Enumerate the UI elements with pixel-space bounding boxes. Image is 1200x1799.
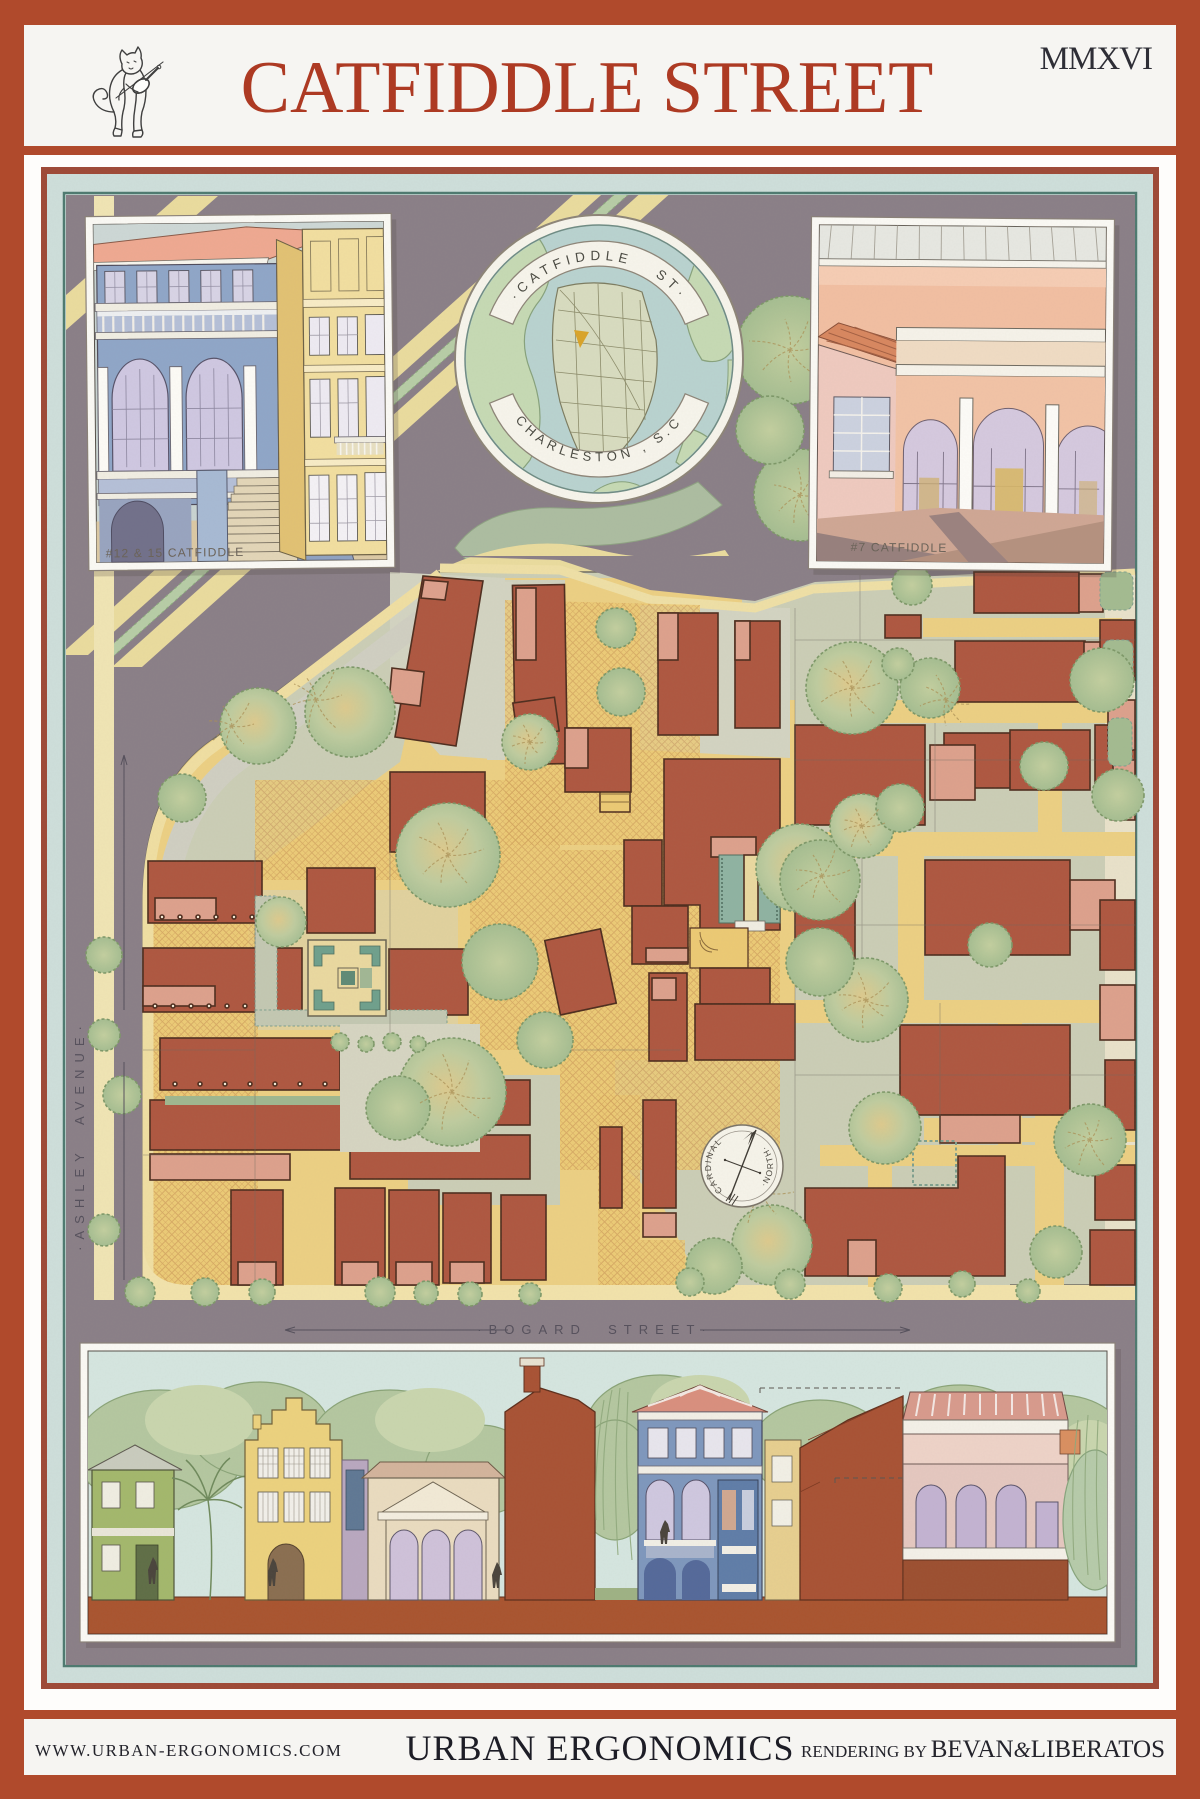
svg-text:MMXVI: MMXVI	[1040, 41, 1152, 77]
svg-text:CATFIDDLE STREET: CATFIDDLE STREET	[241, 47, 934, 129]
svg-text:WWW.URBAN-ERGONOMICS.COM: WWW.URBAN-ERGONOMICS.COM	[35, 1741, 342, 1760]
svg-text:URBAN ERGONOMICS: URBAN ERGONOMICS	[405, 1728, 794, 1768]
